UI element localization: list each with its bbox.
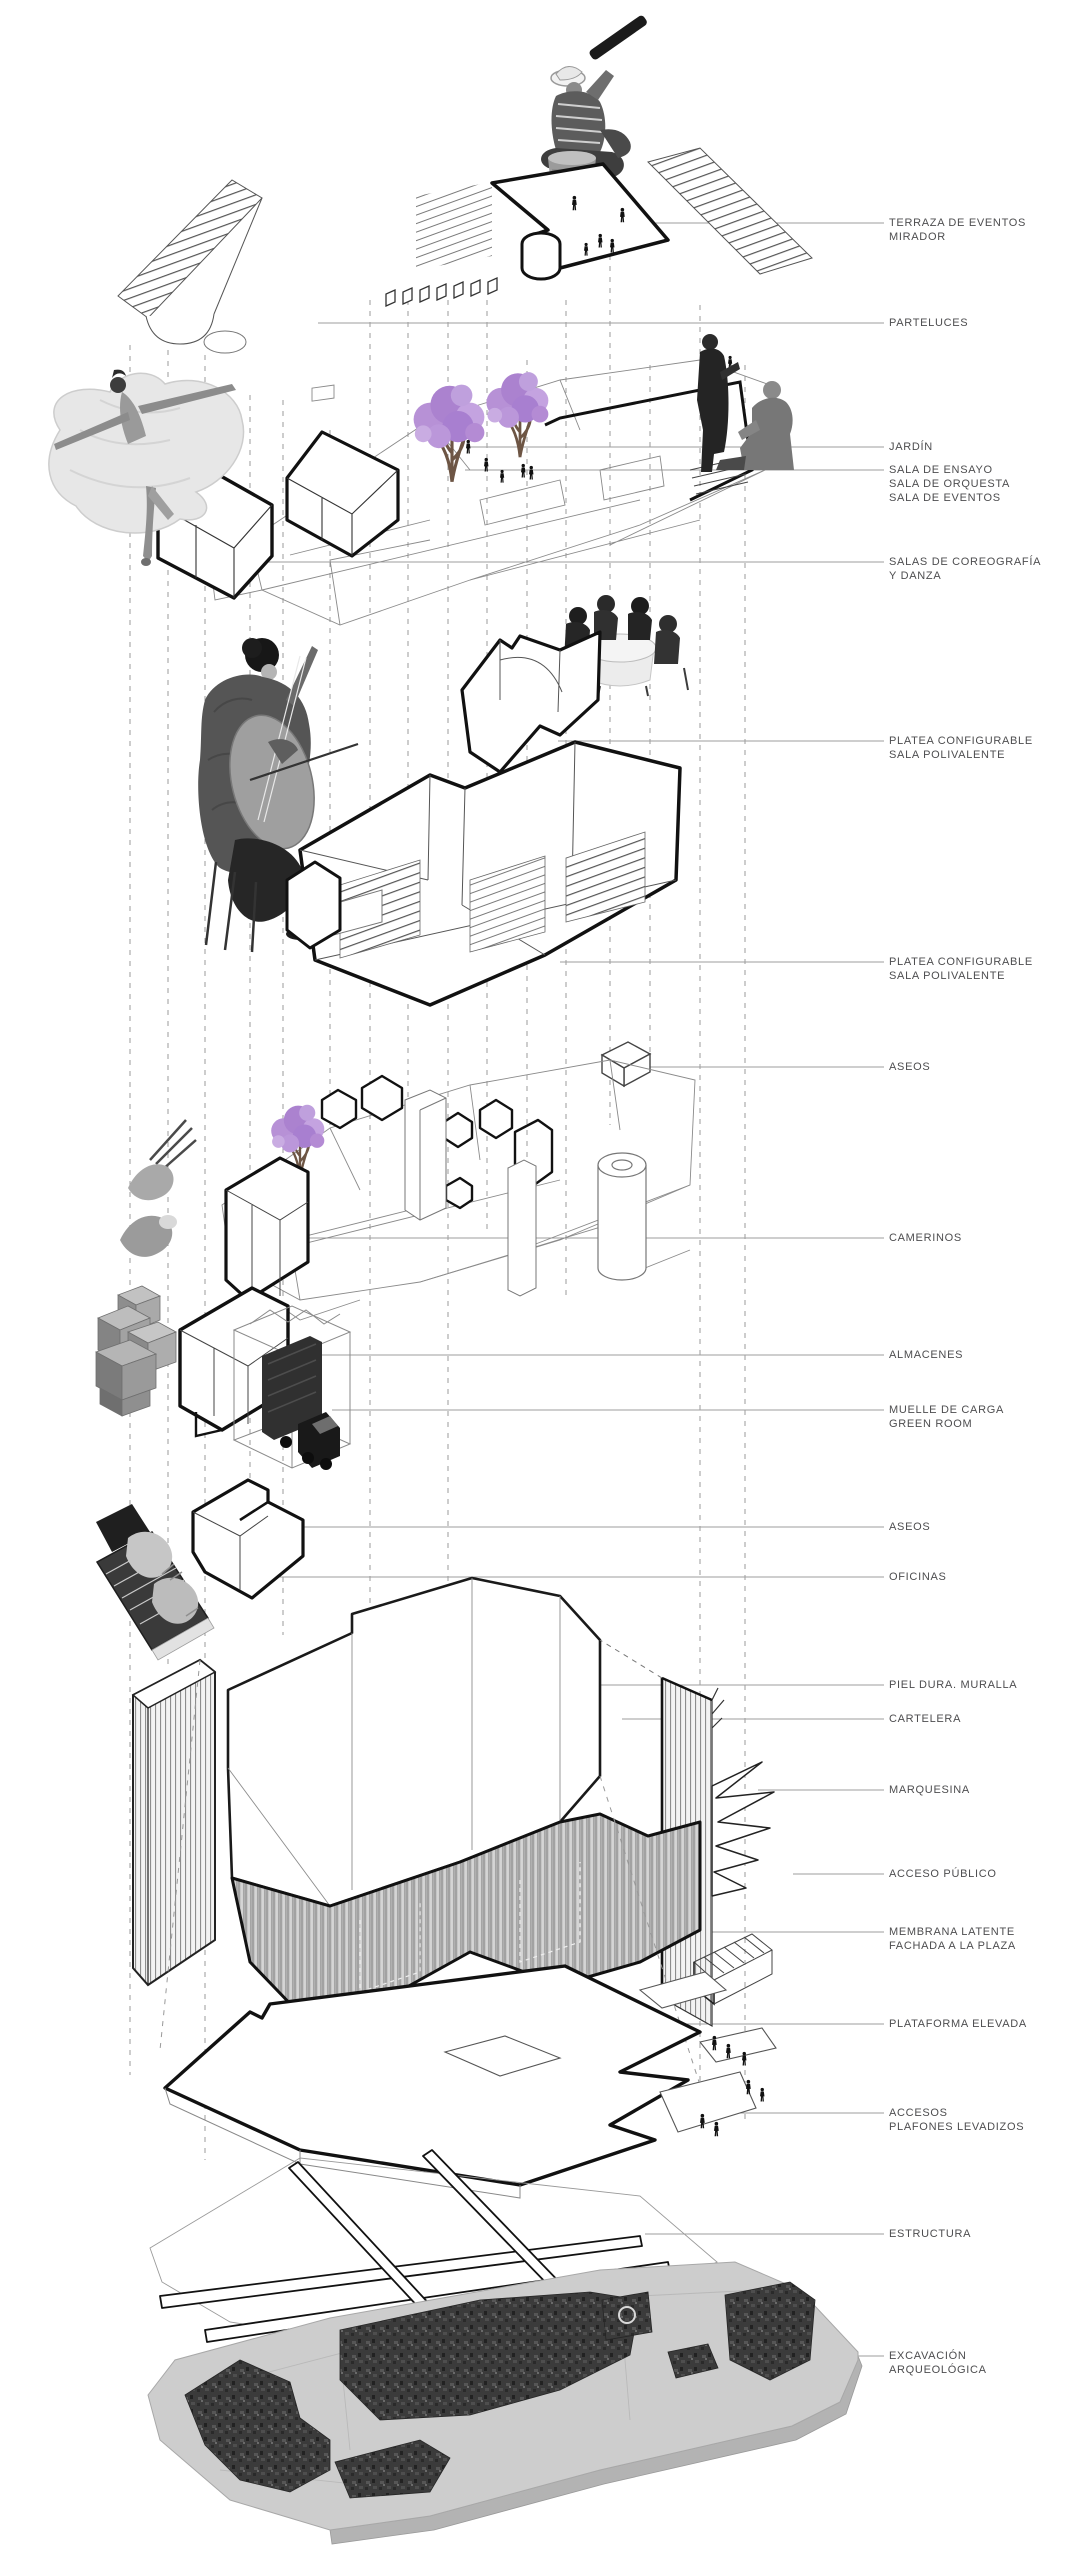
level-almacenes xyxy=(96,1286,350,1470)
label-almacenes: ALMACENES xyxy=(889,1348,1074,1362)
level-terraza xyxy=(118,14,812,353)
stair-left xyxy=(118,180,262,344)
level-excavacion xyxy=(148,2262,862,2544)
label-accesos: ACCESOSPLAFONES LEVADIZOS xyxy=(889,2106,1074,2134)
exploded-axonometric-diagram: TERRAZA DE EVENTOSMIRADOR PARTELUCES JAR… xyxy=(0,0,1077,2560)
label-salas-ensayo: SALA DE ENSAYOSALA DE ORQUESTASALA DE EV… xyxy=(889,463,1074,505)
left-striped-wall xyxy=(133,1660,215,1985)
jacaranda-tree-2 xyxy=(486,372,548,457)
makeup-hands-photo xyxy=(120,1120,196,1257)
label-terraza: TERRAZA DE EVENTOSMIRADOR xyxy=(889,216,1074,244)
label-jardin: JARDÍN xyxy=(889,440,1074,454)
louver-lines xyxy=(416,182,492,270)
label-acceso: ACCESO PÚBLICO xyxy=(889,1867,1074,1881)
label-platea-1: PLATEA CONFIGURABLESALA POLIVALENTE xyxy=(889,734,1074,762)
label-camerinos: CAMERINOS xyxy=(889,1231,1074,1245)
cylinder-top xyxy=(204,331,246,353)
label-cartelera: CARTELERA xyxy=(889,1712,1074,1726)
label-muelle: MUELLE DE CARGAGREEN ROOM xyxy=(889,1403,1074,1431)
label-plataforma: PLATAFORMA ELEVADA xyxy=(889,2017,1074,2031)
label-estructura: ESTRUCTURA xyxy=(889,2227,1074,2241)
level-jardin xyxy=(49,334,794,696)
marquesina-canopy xyxy=(712,1762,774,1896)
camerinos-cylinder xyxy=(598,1153,646,1280)
jacaranda-tree-1 xyxy=(414,385,485,482)
label-coreografia: SALAS DE COREOGRAFÍAY DANZA xyxy=(889,555,1074,583)
terrace-plane xyxy=(492,164,668,279)
camerinos-volume xyxy=(226,1158,308,1300)
level-plataforma xyxy=(165,1966,776,2198)
label-parteluces: PARTELUCES xyxy=(889,316,1074,330)
cardboard-boxes-photo xyxy=(96,1286,176,1416)
diagram-canvas xyxy=(0,0,1077,2560)
polyvalent-hall-volume xyxy=(287,742,680,1005)
level-camerinos xyxy=(120,1060,695,1320)
label-membrana: MEMBRANA LATENTEFACHADA A LA PLAZA xyxy=(889,1925,1074,1953)
label-oficinas: OFICINAS xyxy=(889,1570,1074,1584)
label-piel-dura: PIEL DURA. MURALLA xyxy=(889,1678,1074,1692)
label-aseos-2: ASEOS xyxy=(889,1520,1074,1534)
label-marquesina: MARQUESINA xyxy=(889,1783,1074,1797)
label-platea-2: PLATEA CONFIGURABLESALA POLIVALENTE xyxy=(889,955,1074,983)
label-aseos-1: ASEOS xyxy=(889,1060,1074,1074)
level-oficinas xyxy=(96,1480,303,1660)
stair-right xyxy=(648,148,812,274)
oficinas-volume xyxy=(193,1480,303,1598)
label-excavacion: EXCAVACIÓNARQUEOLÓGICA xyxy=(889,2349,1074,2377)
ensayo-volume xyxy=(287,432,398,556)
parteluces-louvers xyxy=(386,278,497,306)
hall-annex xyxy=(287,862,340,948)
